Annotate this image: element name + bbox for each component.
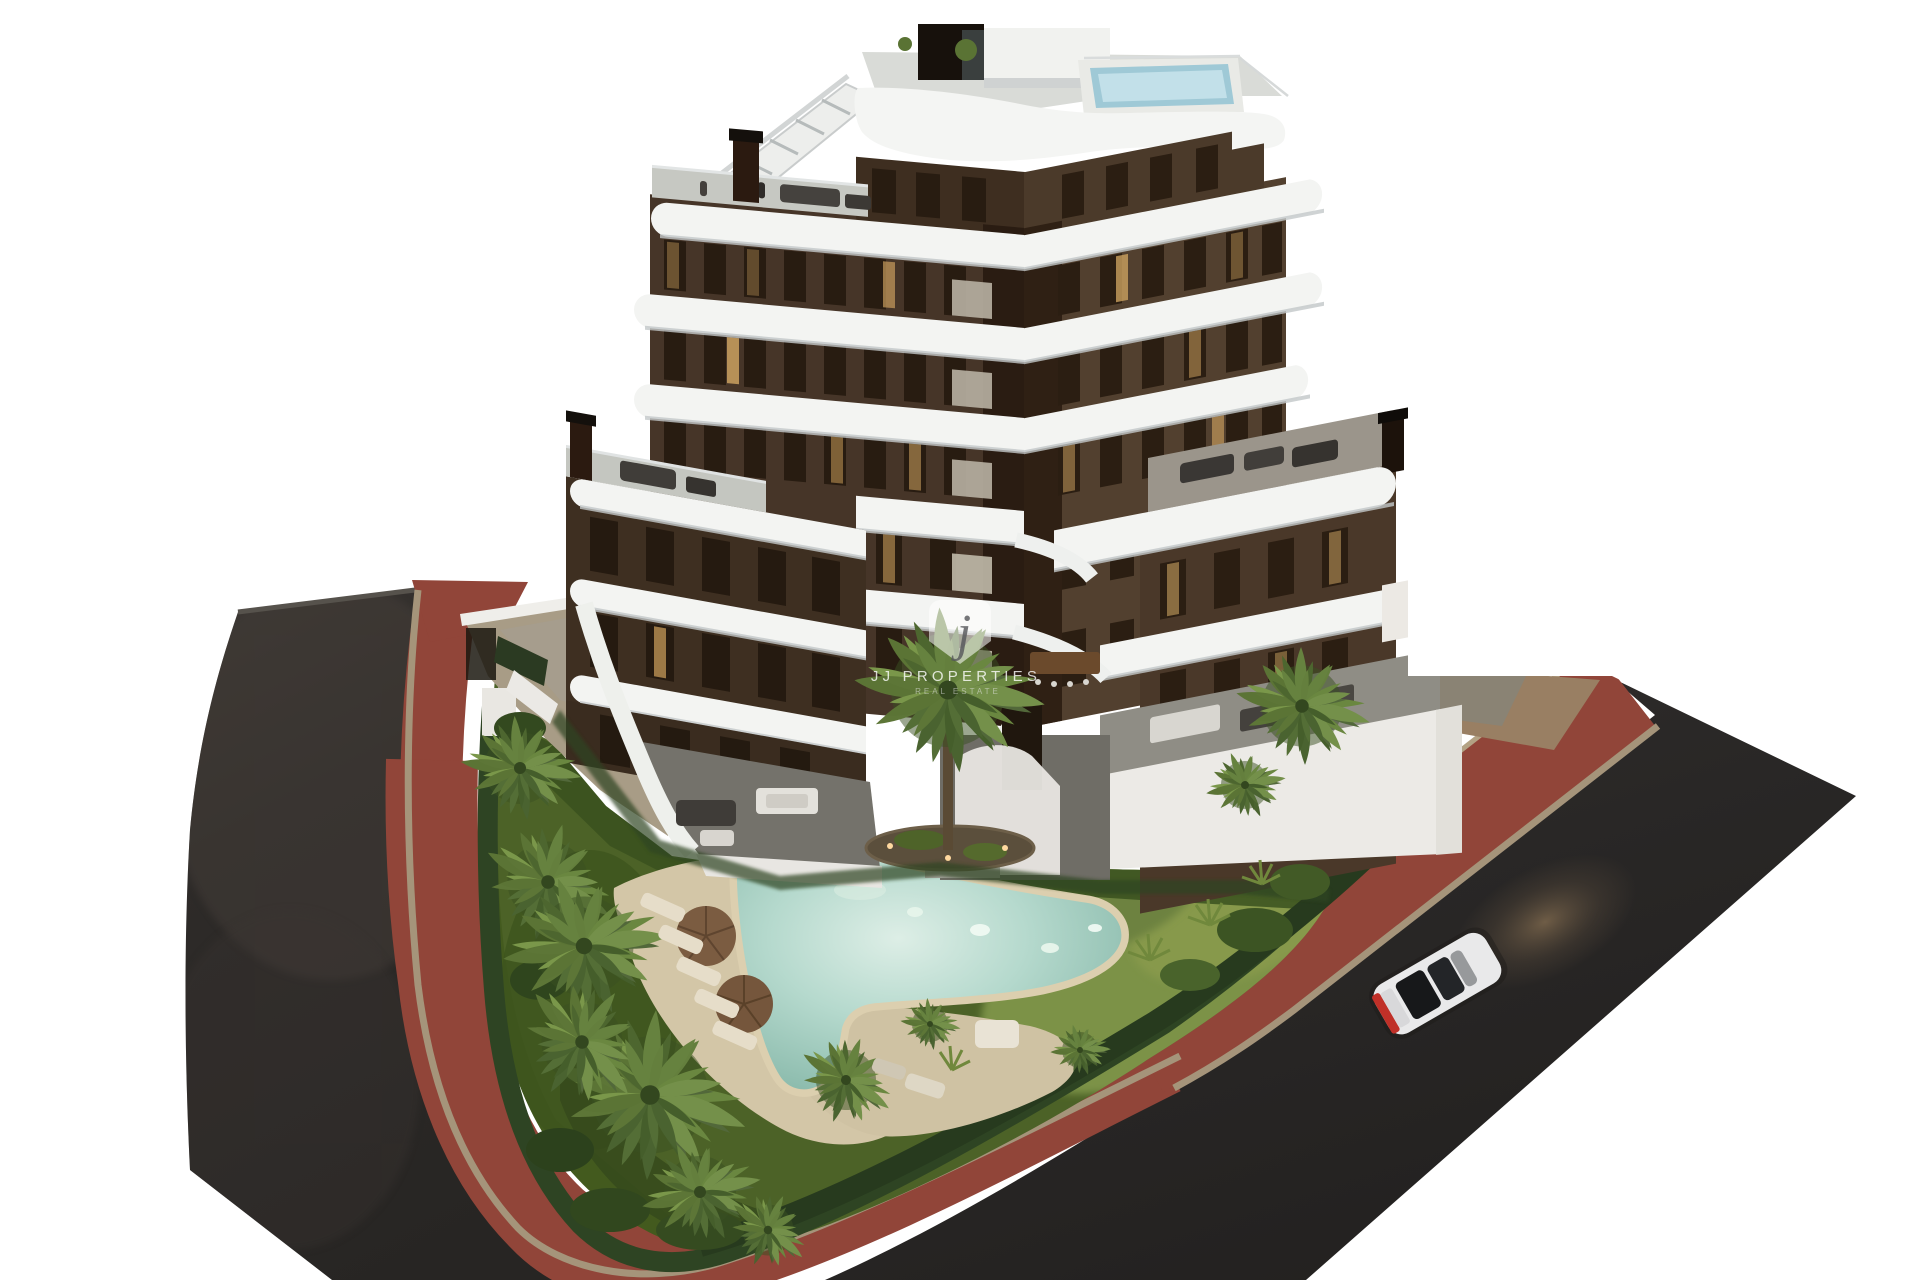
svg-text:JJ PROPERTIES: JJ PROPERTIES (871, 668, 1041, 685)
svg-text:REAL ESTATE: REAL ESTATE (915, 687, 1001, 696)
